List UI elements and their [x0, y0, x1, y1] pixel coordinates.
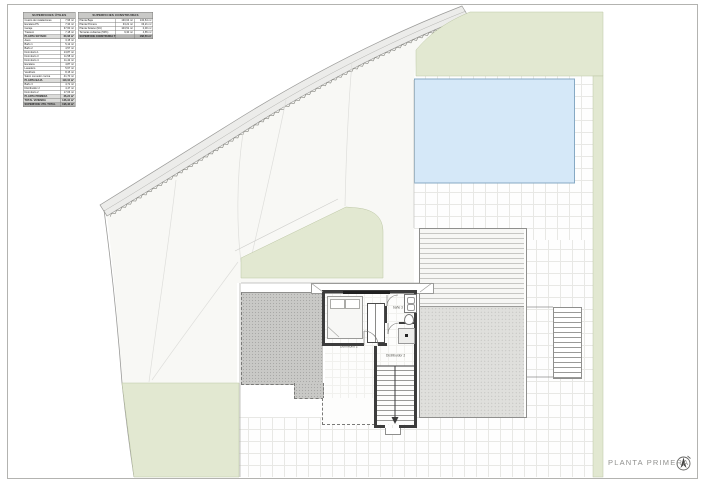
sheet-border [7, 4, 698, 479]
plan-sheet: Dormitorio 2 baño 3 Distribuidor 2 SUPER… [0, 0, 705, 484]
